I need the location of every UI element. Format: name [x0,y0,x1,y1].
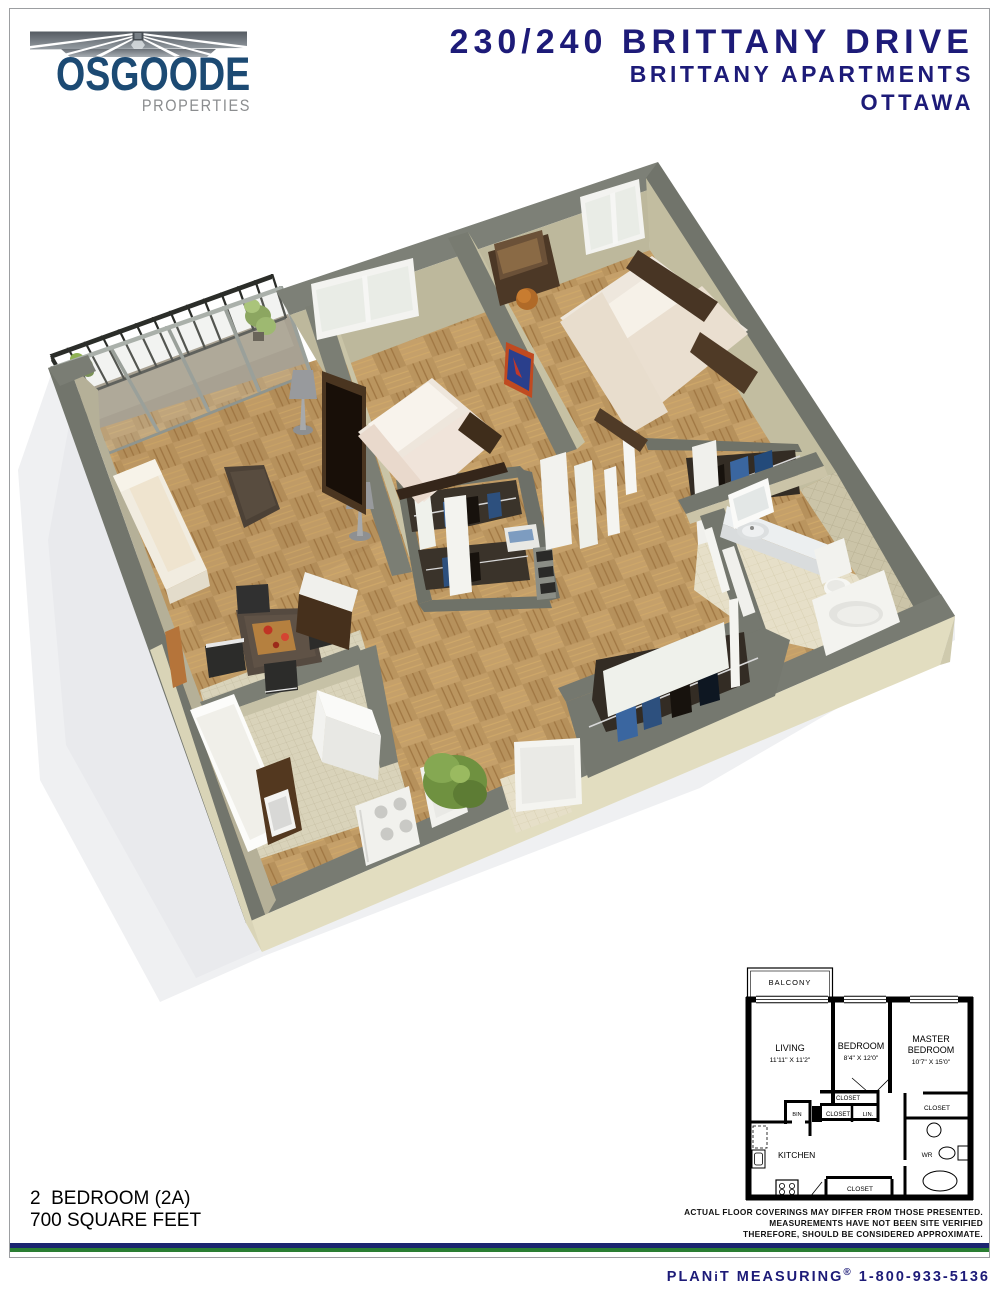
svg-text:CLOSET: CLOSET [847,1186,873,1193]
svg-text:11'11" X 11'2": 11'11" X 11'2" [770,1057,811,1064]
svg-text:8'4" X 12'0": 8'4" X 12'0" [844,1055,879,1062]
svg-text:BALCONY: BALCONY [769,978,812,987]
svg-text:CLOSET: CLOSET [924,1105,950,1112]
svg-text:BIN: BIN [792,1112,801,1118]
svg-text:KITCHEN: KITCHEN [778,1150,815,1160]
svg-text:LIN.: LIN. [863,1112,874,1118]
svg-text:CLOSET: CLOSET [836,1096,860,1102]
svg-text:10'7" X 15'0": 10'7" X 15'0" [912,1059,951,1066]
svg-text:BEDROOM: BEDROOM [908,1045,955,1055]
svg-text:CLOSET: CLOSET [826,1112,850,1118]
svg-text:BEDROOM: BEDROOM [838,1041,885,1051]
svg-text:WR: WR [922,1152,933,1159]
svg-text:LIVING: LIVING [775,1043,805,1053]
svg-text:MASTER: MASTER [912,1034,950,1044]
